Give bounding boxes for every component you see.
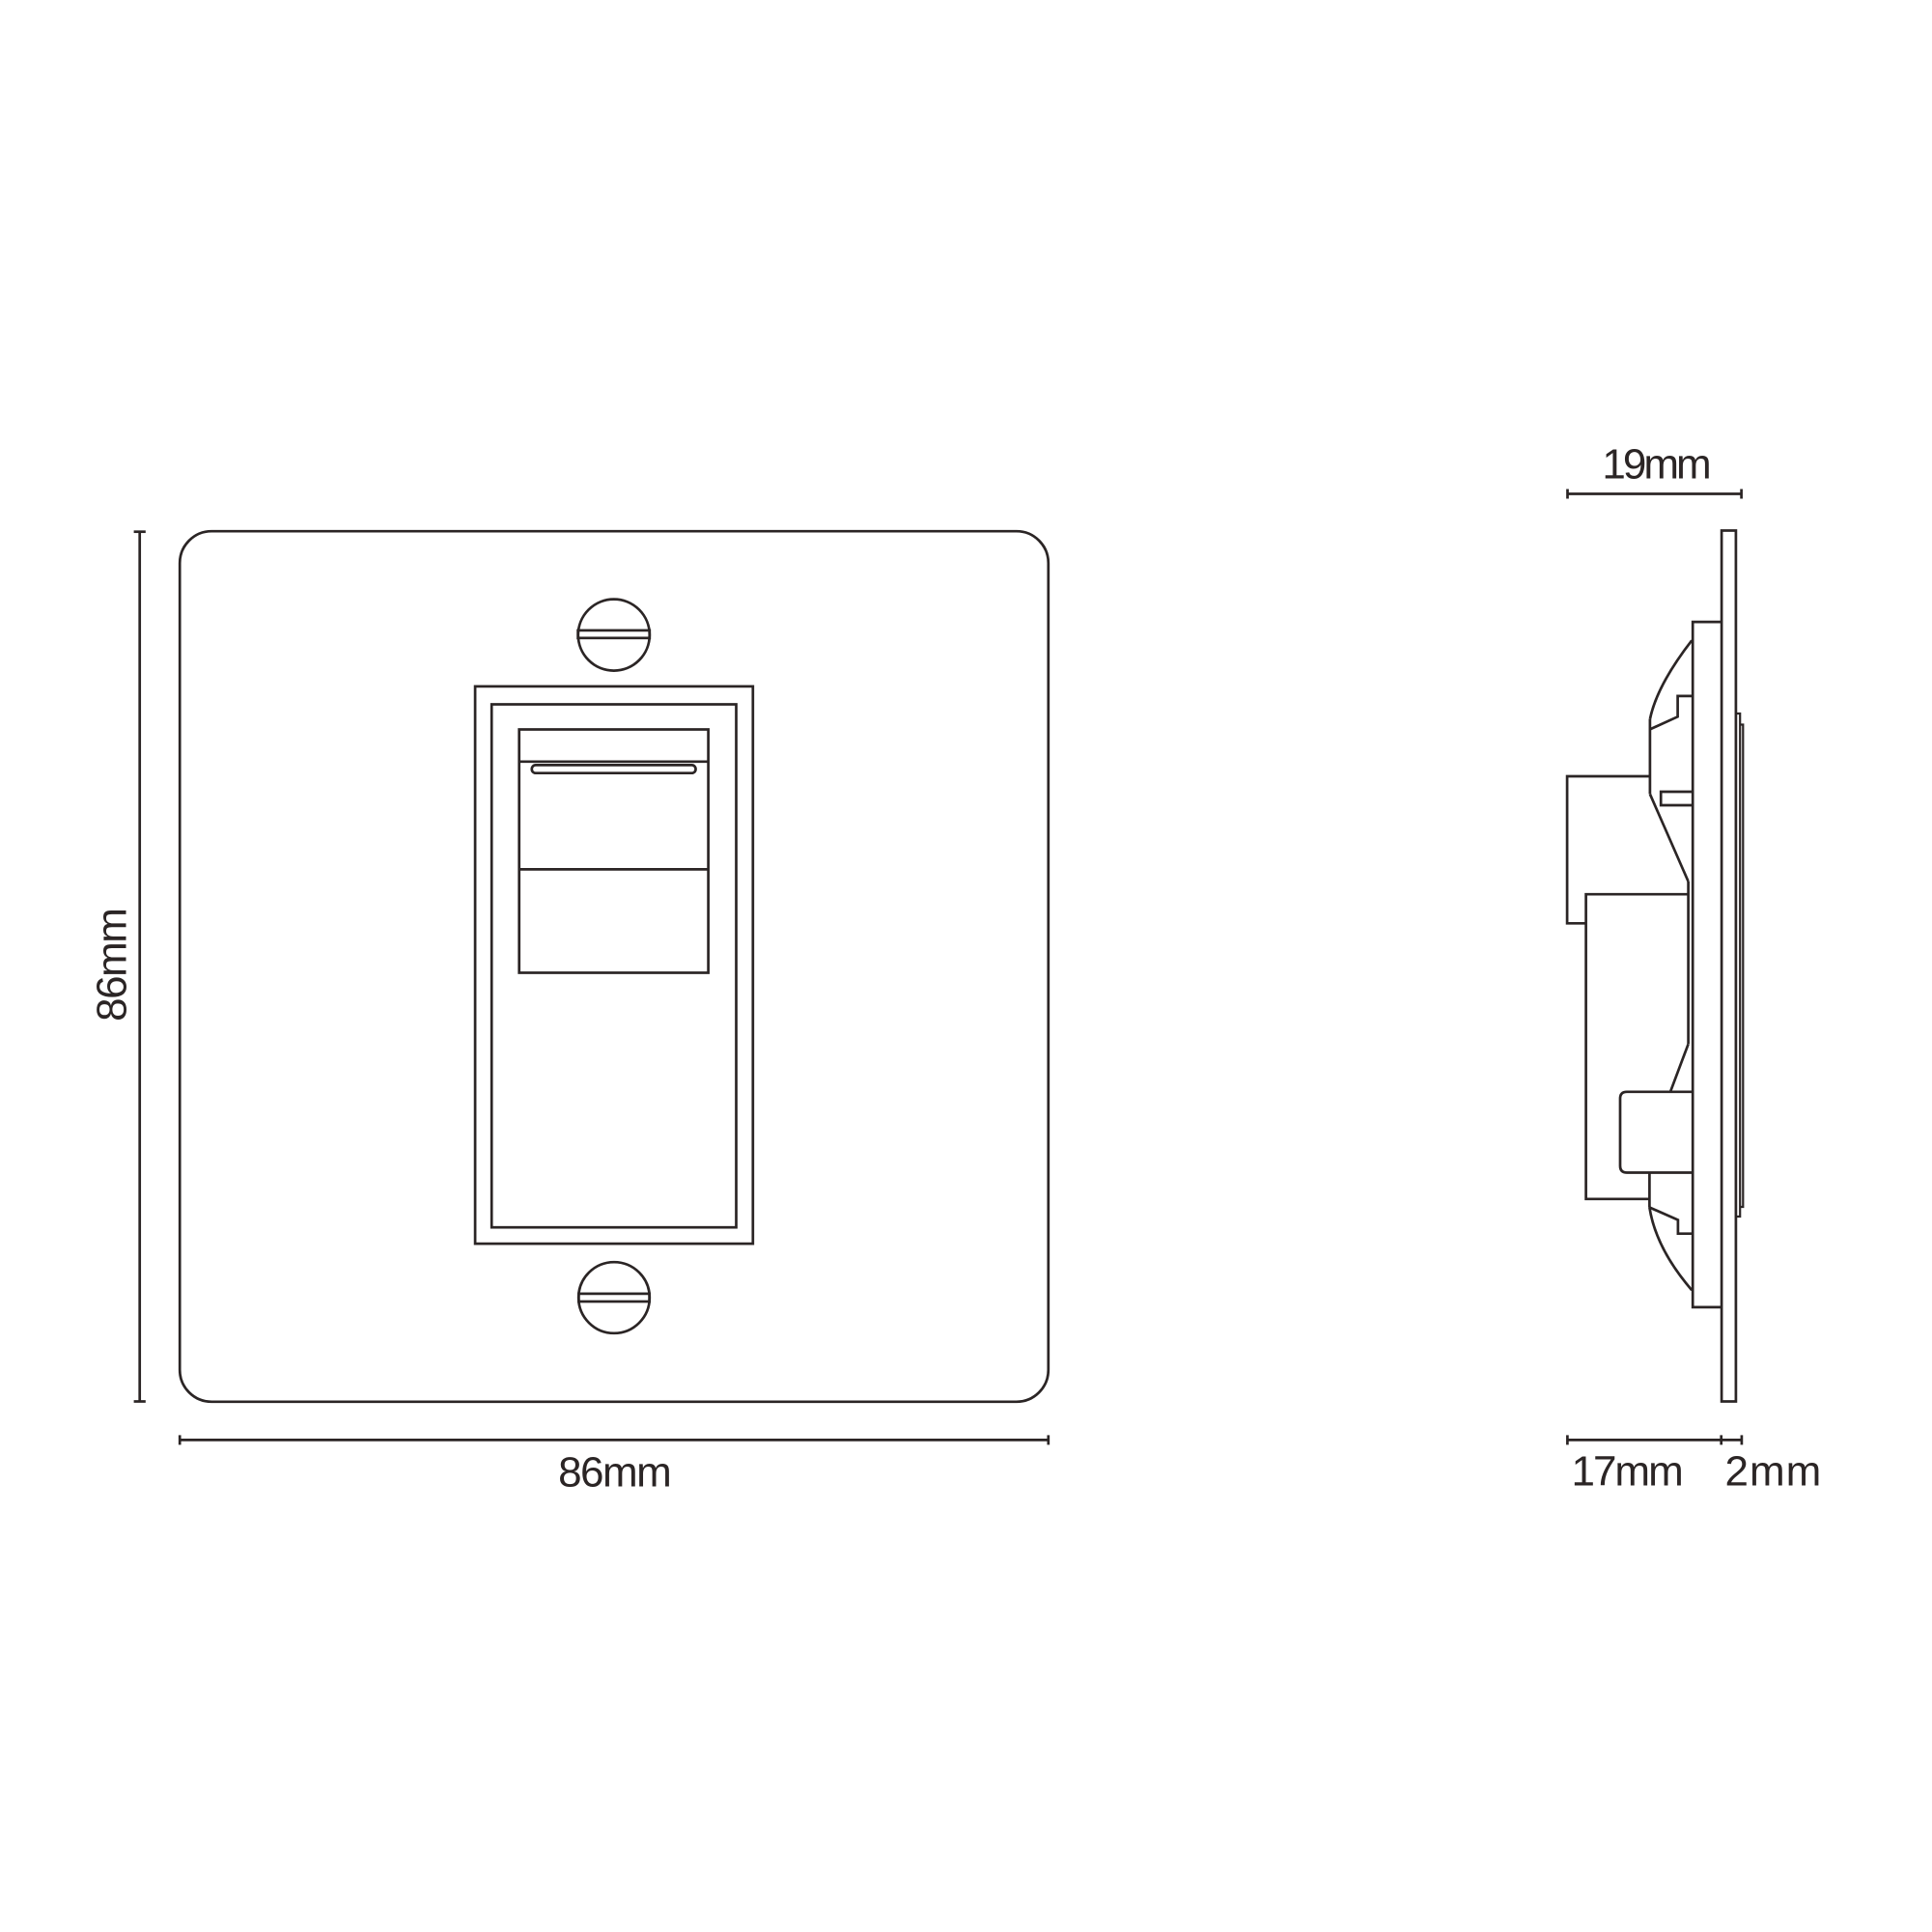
svg-text:19mm: 19mm: [1602, 441, 1709, 489]
svg-text:2mm: 2mm: [1725, 1447, 1823, 1495]
svg-text:86mm: 86mm: [89, 910, 136, 1022]
svg-text:17mm: 17mm: [1571, 1447, 1681, 1495]
svg-text:86mm: 86mm: [558, 1449, 670, 1497]
